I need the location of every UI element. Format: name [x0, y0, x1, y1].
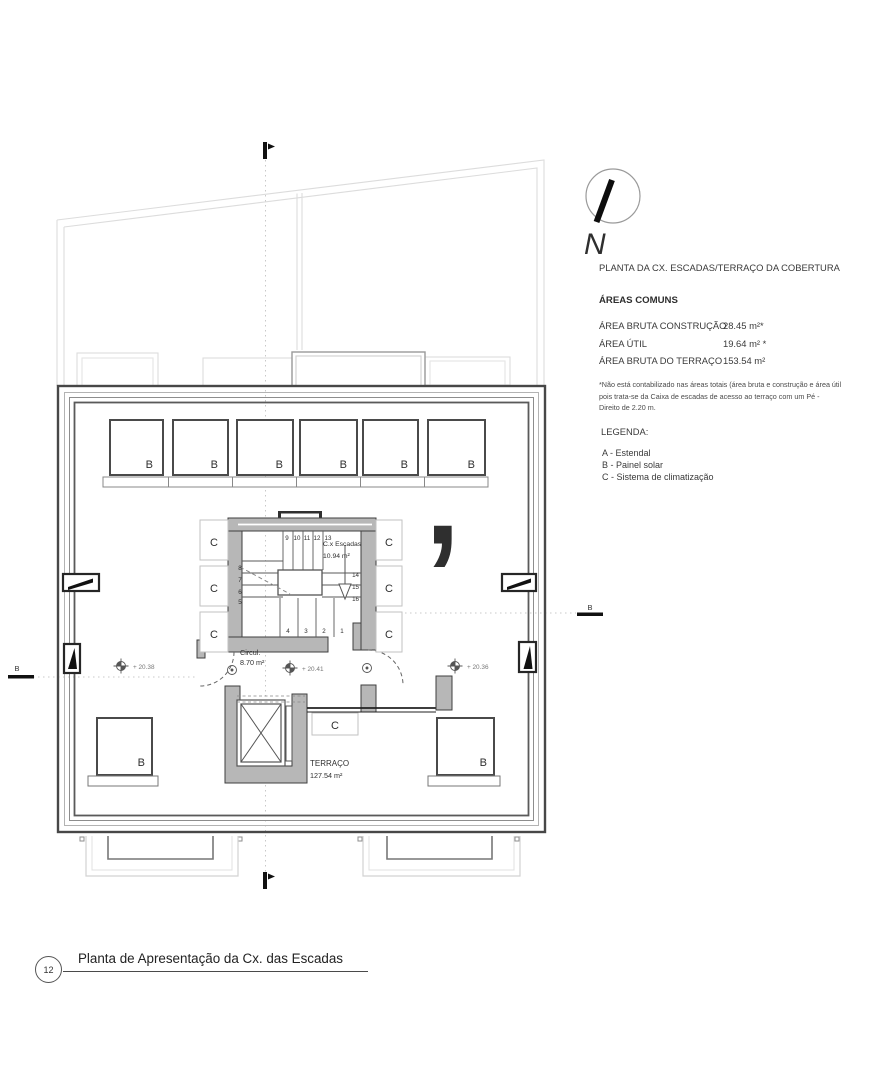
climate-label: C [385, 583, 393, 595]
floor-plan-drawing: B B B B B B B B [0, 0, 892, 1080]
area-row: ÁREA ÚTIL 19.64 m² * [599, 338, 845, 356]
elevator-shaft [225, 686, 307, 783]
circulation-area: 8.70 m² [240, 658, 265, 667]
climate-label: C [385, 629, 393, 641]
step-number: 14 [352, 572, 359, 579]
sheet-title: Planta de Apresentação da Cx. das Escada… [78, 951, 343, 966]
step-number: 1 [340, 628, 344, 635]
areas-heading: ÁREAS COMUNS [599, 295, 678, 306]
legend-heading: LEGENDA: [601, 426, 648, 437]
area-label: ÁREA BRUTA DO TERRAÇO [599, 355, 723, 373]
north-needle [597, 180, 613, 222]
climate-label: C [210, 583, 218, 595]
north-label: N [584, 228, 606, 261]
legend-item: B - Painel solar [602, 460, 714, 472]
climate-label: C [210, 629, 218, 641]
terrace-name: TERRAÇO [310, 759, 349, 768]
terrace-room: TERRAÇO 127.54 m² [310, 759, 349, 780]
legend-item: C - Sistema de climatização [602, 472, 714, 484]
drawing-sheet: B B B B B B B B [0, 0, 892, 1080]
step-number: 15 [352, 584, 359, 591]
areas-footnote: *Não está contabilizado nas áreas totais… [599, 379, 842, 414]
panel-label: B [340, 459, 347, 471]
panel-rail [103, 477, 488, 487]
area-value: 28.45 m²* [723, 320, 764, 338]
solar-panels-top: B B B B B B [103, 420, 488, 487]
climate-label: C [331, 720, 339, 732]
stairs-room-name: C.x Escadas [323, 541, 362, 548]
step-number: 6 [238, 589, 242, 596]
level-value: + 20.41 [302, 666, 324, 673]
area-label: ÁREA ÚTIL [599, 338, 723, 356]
section-label-right: B [587, 603, 592, 612]
legend-list: A - Estendal B - Painel solar C - Sistem… [602, 448, 714, 483]
balconies [86, 836, 520, 876]
area-row: ÁREA BRUTA DO TERRAÇO 153.54 m² [599, 355, 845, 373]
staircase: 9 10 11 12 13 4 3 2 1 8 7 6 5 14 15 16 C… [238, 531, 361, 637]
panel-label: B [138, 757, 145, 769]
step-number: 9 [285, 535, 289, 542]
legend-item: A - Estendal [602, 448, 714, 460]
level-value: + 20.36 [467, 664, 489, 671]
roof-outline [57, 160, 544, 386]
terrace-area: 127.54 m² [310, 771, 343, 780]
panel-label: B [468, 459, 475, 471]
step-number: 3 [304, 628, 308, 635]
step-number: 2 [322, 628, 326, 635]
north-arrow: N [584, 169, 640, 261]
section-label-left: B [14, 664, 19, 673]
climate-label: C [210, 537, 218, 549]
sheet-number: 12 [43, 965, 53, 975]
step-number: 16 [352, 596, 359, 603]
areas-table: ÁREA BRUTA CONSTRUÇÃO 28.45 m²* ÁREA ÚTI… [599, 320, 845, 373]
step-number: 12 [314, 535, 321, 542]
area-value: 153.54 m² [723, 355, 765, 373]
panel-label: B [211, 459, 218, 471]
door-swing-terrace [368, 650, 403, 685]
panel-label: B [480, 757, 487, 769]
climate-label: C [385, 537, 393, 549]
panel-label: B [276, 459, 283, 471]
step-number: 4 [286, 628, 290, 635]
title-underline [63, 971, 368, 972]
watermark-logo: ’ [422, 487, 463, 693]
sheet-number-badge: 12 [35, 956, 62, 983]
level-value: + 20.38 [133, 664, 155, 671]
step-number: 10 [294, 535, 301, 542]
plan-title: PLANTA DA CX. ESCADAS/TERRAÇO DA COBERTU… [599, 262, 840, 273]
area-value: 19.64 m² * [723, 338, 766, 356]
area-row: ÁREA BRUTA CONSTRUÇÃO 28.45 m²* [599, 320, 845, 338]
step-number: 7 [238, 577, 242, 584]
circulation-name: Circul. [240, 648, 260, 657]
step-number: 5 [238, 599, 242, 606]
area-label: ÁREA BRUTA CONSTRUÇÃO [599, 320, 723, 338]
panel-label: B [146, 459, 153, 471]
stairs-room-area: 10.94 m² [323, 553, 351, 560]
panel-label: B [401, 459, 408, 471]
step-number: 11 [304, 535, 311, 542]
step-number: 8 [238, 565, 242, 572]
